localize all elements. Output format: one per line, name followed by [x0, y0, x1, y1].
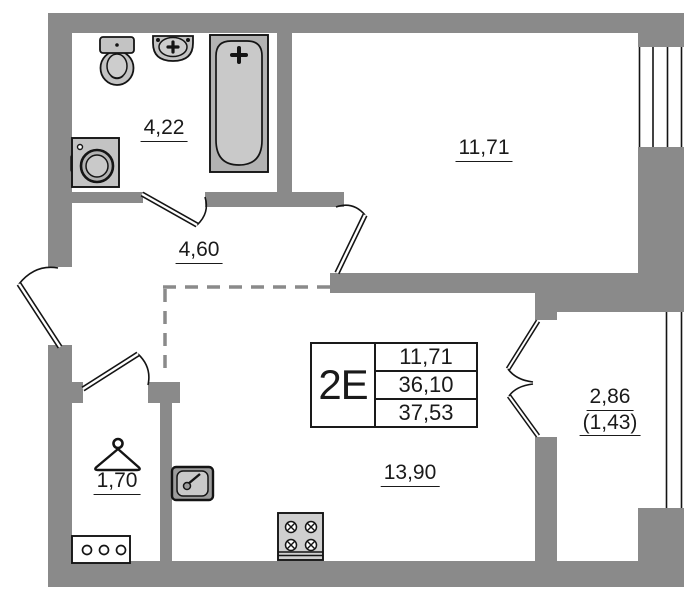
apartment-area-value: 36,10 — [376, 370, 476, 398]
shoe-cabinet-icon — [72, 536, 130, 563]
living-room-door — [336, 205, 365, 273]
wall-left-upper — [48, 13, 72, 267]
living-area-value: 11,71 — [376, 344, 476, 370]
wall-bottom — [48, 561, 684, 587]
wall-livingroom-bottom — [330, 273, 640, 293]
hanger-icon — [95, 439, 139, 470]
living-room-area-label: 11,71 — [456, 136, 513, 162]
washing-machine-icon — [71, 138, 119, 187]
floor-plan-canvas — [0, 0, 698, 600]
wall-bathroom-right — [277, 33, 292, 192]
kitchen-sink-icon — [172, 467, 213, 500]
toilet-icon — [100, 37, 134, 85]
floor-plan-page: 4,22 11,71 4,60 1,70 13,90 2,86 (1,43) 2… — [0, 0, 698, 600]
wall-closet-right — [160, 403, 172, 561]
kitchen-living-area-label: 13,90 — [381, 461, 440, 487]
wall-bathroom-bottom-right — [205, 192, 344, 207]
hallway-area-label: 4,60 — [176, 238, 223, 264]
balcony-reduced-area-label: (1,43) — [580, 411, 641, 437]
wall-right-top-block — [638, 13, 684, 47]
apartment-info-table: 2E 11,71 36,10 37,53 — [310, 342, 478, 428]
wall-closet-left-stub — [72, 382, 83, 403]
wall-balcony-top-band — [557, 293, 684, 312]
wall-right-middle — [638, 147, 684, 312]
wall-closet-right-stub — [148, 382, 180, 403]
wall-left-lower — [48, 345, 72, 587]
wall-balcony-left-lower — [535, 437, 557, 561]
wall-top — [48, 13, 684, 33]
bathtub-icon — [210, 35, 268, 172]
balcony-area-label: 2,86 (1,43) — [580, 385, 641, 436]
wall-sink-icon — [153, 36, 193, 61]
bathroom-area-label: 4,22 — [141, 116, 188, 142]
apartment-type-label: 2E — [312, 344, 376, 426]
balcony-casement-window — [508, 321, 538, 436]
wall-balcony-left-upper-stub — [535, 293, 557, 320]
stove-icon — [278, 513, 323, 560]
apartment-areas-column: 11,71 36,10 37,53 — [376, 344, 476, 426]
bathroom-door — [142, 194, 206, 225]
wall-bathroom-bottom-left — [72, 192, 143, 203]
window-living-room — [638, 47, 684, 147]
closet-area-label: 1,70 — [94, 469, 141, 495]
entrance-door — [19, 267, 60, 347]
total-area-value: 37,53 — [376, 398, 476, 426]
wall-balcony-bottom-block — [638, 508, 684, 587]
balcony-glazing — [667, 312, 682, 508]
walls — [48, 13, 684, 587]
closet-door — [83, 354, 149, 389]
kitchen-zone-dashed-line — [163, 287, 332, 376]
